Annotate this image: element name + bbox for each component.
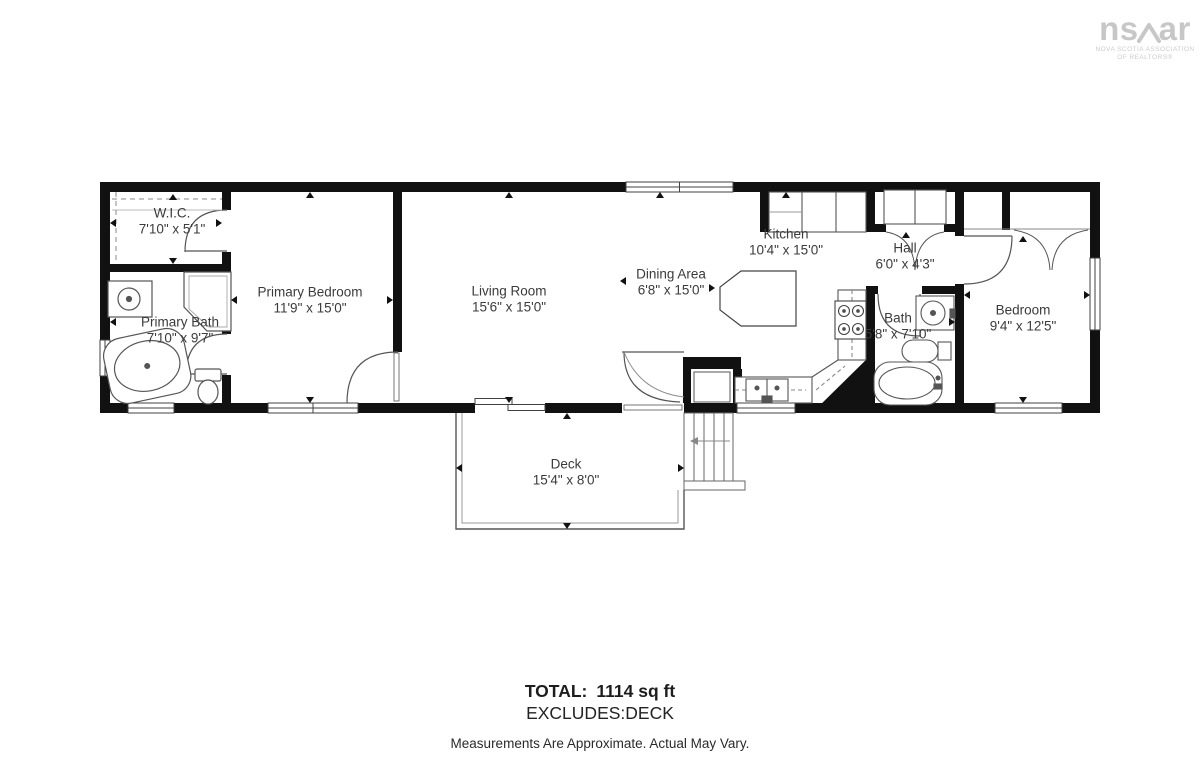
- room-dims: 15'6" x 15'0": [471, 300, 546, 316]
- total-area-line: TOTAL:1114 sq ft: [0, 681, 1200, 702]
- room-name: Hall: [875, 241, 934, 257]
- room-dims: 15'4" x 8'0": [533, 473, 600, 489]
- room-label-bedroom: Bedroom 9'4" x 12'5": [990, 303, 1057, 336]
- room-name: Kitchen: [749, 227, 823, 243]
- room-dims: 5'8" x 7'10": [865, 327, 932, 343]
- room-name: Bedroom: [990, 303, 1057, 319]
- room-dims: 6'0" x 4'3": [875, 257, 934, 273]
- room-label-primary-bedroom: Primary Bedroom 11'9" x 15'0": [257, 285, 362, 318]
- room-label-primary-bath: Primary Bath 7'10" x 9'7": [141, 315, 219, 348]
- floor-plan-svg: [0, 0, 1200, 776]
- total-label: TOTAL:: [525, 681, 588, 701]
- excludes-line: EXCLUDES:DECK: [0, 703, 1200, 724]
- entry-closet: [694, 372, 730, 402]
- deck-stairs: [684, 413, 745, 490]
- room-dims: 7'10" x 9'7": [141, 331, 219, 347]
- room-dims: 7'10" x 5'1": [139, 222, 206, 238]
- room-dims: 6'8" x 15'0": [636, 283, 706, 299]
- room-name: Dining Area: [636, 267, 706, 283]
- room-name: Deck: [533, 457, 600, 473]
- disclaimer-line: Measurements Are Approximate. Actual May…: [0, 736, 1200, 751]
- laundry-appliances: [884, 190, 946, 224]
- room-name: Primary Bath: [141, 315, 219, 331]
- room-label-hall: Hall 6'0" x 4'3": [875, 241, 934, 274]
- room-name: Primary Bedroom: [257, 285, 362, 301]
- room-label-deck: Deck 15'4" x 8'0": [533, 457, 600, 490]
- room-label-living-room: Living Room 15'6" x 15'0": [471, 284, 546, 317]
- room-name: Living Room: [471, 284, 546, 300]
- floorplan-page: ns ar NOVA SCOTIA ASSOCIATION OF REALTOR…: [0, 0, 1200, 776]
- dining-table: [720, 271, 796, 326]
- room-name: Bath: [865, 311, 932, 327]
- room-label-wic: W.I.C. 7'10" x 5'1": [139, 206, 206, 239]
- room-label-kitchen: Kitchen 10'4" x 15'0": [749, 227, 823, 260]
- room-label-bath: Bath 5'8" x 7'10": [865, 311, 932, 344]
- room-dims: 11'9" x 15'0": [257, 301, 362, 317]
- room-dims: 10'4" x 15'0": [749, 243, 823, 259]
- room-label-dining-area: Dining Area 6'8" x 15'0": [636, 267, 706, 300]
- room-dims: 9'4" x 12'5": [990, 319, 1057, 335]
- room-name: W.I.C.: [139, 206, 206, 222]
- total-value: 1114 sq ft: [596, 681, 675, 701]
